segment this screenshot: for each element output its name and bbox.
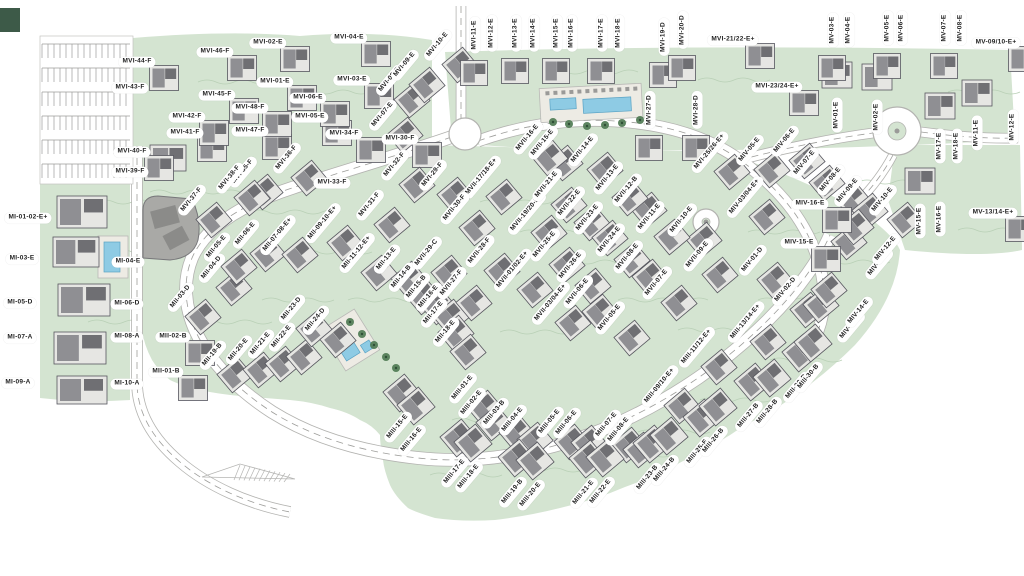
unit-label: MVI-19-D [659, 18, 670, 56]
unit-label: MVI-37-F [176, 182, 208, 217]
unit-label: MVI-02-E [249, 38, 286, 49]
unit-label: MVI-40-F [113, 147, 150, 158]
unit-label: MIV-16-E [791, 199, 828, 210]
unit-label: MVII-05-E [593, 299, 627, 336]
unit-label: MI-10-A [110, 379, 143, 390]
unit-label: MI-09-A [1, 378, 34, 389]
unit-label: MVI-01-E [256, 77, 293, 88]
unit-label: MV-01-E [832, 97, 843, 132]
unit-label: MII-02-B [155, 332, 190, 343]
unit-label: MII-09-10-E+ [303, 201, 343, 246]
unit-label: MV-16-E [935, 201, 946, 236]
unit-label: MII-19-B [198, 338, 229, 372]
unit-label: MIV-07-E [789, 145, 821, 180]
unit-label: MVI-47-F [231, 126, 268, 137]
unit-label: MVI-34-F [325, 129, 362, 140]
unit-label: MII-13-E [372, 242, 403, 276]
unit-label: MIII-09/10-E+ [640, 363, 681, 409]
unit-label: MII-24-D [301, 303, 332, 337]
unit-label: MIII-13/14-E+ [726, 299, 767, 345]
unit-label: MVII-30-F [438, 190, 471, 227]
unit-label: MV-02-E [872, 99, 883, 134]
unit-label: MVI-20-D [678, 11, 689, 49]
unit-label: MVII-24-E [593, 221, 627, 258]
unit-label: MV-05-E [883, 10, 894, 45]
unit-label: MV-07-E [940, 10, 951, 45]
unit-label: MVI-14-E [529, 14, 540, 51]
unit-label: MI-06-D [110, 299, 143, 310]
unit-label: MVII-01/02-E+ [492, 246, 535, 294]
unit-label: MII-11-12-E+ [337, 231, 377, 275]
unit-label: MV-06-E [897, 10, 908, 45]
unit-label: MVI-32-F [379, 147, 411, 182]
unit-label: MI-08-A [110, 332, 143, 343]
unit-label: MVI-45-F [198, 90, 235, 101]
unit-label: MVII-09-E [681, 236, 715, 273]
unit-label: MVI-46-F [196, 47, 233, 58]
unit-label: MVI-18-E [614, 14, 625, 51]
unit-label: MIV-15-E [780, 238, 817, 249]
unit-label: MV-15-E [915, 203, 926, 238]
unit-label: MII-23-D [277, 292, 308, 326]
unit-label: MV-17-E [935, 128, 946, 163]
unit-label: MII-01-B [148, 367, 183, 378]
unit-label: MVI-25/26-E+ [689, 129, 730, 175]
unit-label: MVI-27-D [645, 91, 656, 129]
unit-label: MVI-10-E [422, 27, 454, 63]
unit-label: MVI-15-E [552, 14, 563, 51]
site-plan-map: MI-01-02-E+MI-03-EMI-04-EMI-05-DMI-06-DM… [0, 0, 1024, 576]
unit-label: MVI-42-F [168, 112, 205, 123]
unit-label: MVI-43-F [111, 83, 148, 94]
unit-label: MVII-29-C [410, 234, 444, 271]
unit-label: MIV-10-E [867, 182, 899, 217]
unit-label: MVI-21/22-E+ [707, 35, 758, 46]
unit-label: MIV-03/04-E+ [724, 174, 765, 220]
unit-label: MV-13/14-E+ [969, 208, 1018, 219]
unit-label: MV-18-E [952, 128, 963, 163]
unit-label: MVI-48-F [231, 103, 268, 114]
unit-label: MV-12-E [1008, 109, 1019, 144]
unit-label: MVI-30-F [381, 134, 418, 145]
unit-label: MIV-05-E [734, 132, 766, 167]
unit-label: MIV-02-D [770, 272, 802, 308]
unit-label: MIV-01-D [737, 242, 769, 278]
unit-label: MVI-05-E [291, 112, 328, 123]
unit-label: MVI-11-E [470, 16, 481, 53]
unit-label: MVI-07-E [367, 97, 399, 133]
unit-label: MVII-28-F [463, 233, 496, 270]
unit-label: MVI-29-F [417, 157, 449, 192]
unit-label: MVI-09-E [389, 47, 421, 83]
unit-label: MII-07-08-E+ [258, 213, 298, 258]
unit-labels-layer: MI-01-02-E+MI-03-EMI-04-EMI-05-DMI-06-DM… [0, 0, 1024, 576]
unit-label: MV-04-E [844, 12, 855, 47]
unit-label: MV-03-E [828, 12, 839, 47]
unit-label: MVI-31-F [354, 187, 386, 222]
unit-label: MVII-10-E [665, 201, 699, 238]
unit-label: MVII-07-E [640, 264, 674, 301]
unit-label: MI-03-E [6, 254, 39, 265]
unit-label: MII-18-E [431, 315, 462, 349]
unit-label: MI-01-02-E+ [4, 213, 51, 224]
unit-label: MVII-11-E [633, 199, 666, 236]
unit-label: MVI-28-D [692, 91, 703, 129]
unit-label: MVI-39-F [111, 167, 148, 178]
unit-label: MII-03-D [166, 280, 197, 314]
unit-label: MI-05-D [3, 298, 36, 309]
unit-label: MVI-04-E [330, 33, 367, 44]
unit-label: MVII-21-E [530, 166, 564, 203]
unit-label: MVI-17-E [597, 14, 608, 51]
unit-label: MI-07-A [3, 333, 36, 344]
unit-label: MII-06-E [231, 217, 262, 251]
unit-label: MVI-41-F [166, 128, 203, 139]
unit-label: MV-11-E [972, 116, 983, 151]
unit-label: MIV-06-E [769, 123, 801, 158]
unit-label: MVII-25-E [528, 226, 562, 263]
unit-label: MIII-11/12-E+ [677, 324, 718, 370]
unit-label: MVII-14-E [566, 131, 600, 168]
unit-label: MI-04-E [112, 257, 145, 268]
unit-label: MVI-16-E [567, 14, 578, 51]
unit-label: MV-08-E [956, 10, 967, 45]
unit-label: MVI-06-E [289, 93, 326, 104]
unit-label: MV-09/10-E+ [972, 38, 1021, 49]
unit-label: MVI-36-F [271, 140, 303, 175]
unit-label: MVI-12-E [487, 14, 498, 51]
unit-label: MVII-23-E [571, 199, 605, 236]
unit-label: MVI-13-E [511, 14, 522, 51]
unit-label: MVII-08-E [611, 238, 645, 275]
unit-label: MVI-03-E [333, 75, 370, 86]
unit-label: MVI-44-F [118, 57, 155, 68]
unit-label: MVI-23/24-E+ [751, 82, 802, 93]
unit-label: MVI-33-F [313, 178, 350, 189]
